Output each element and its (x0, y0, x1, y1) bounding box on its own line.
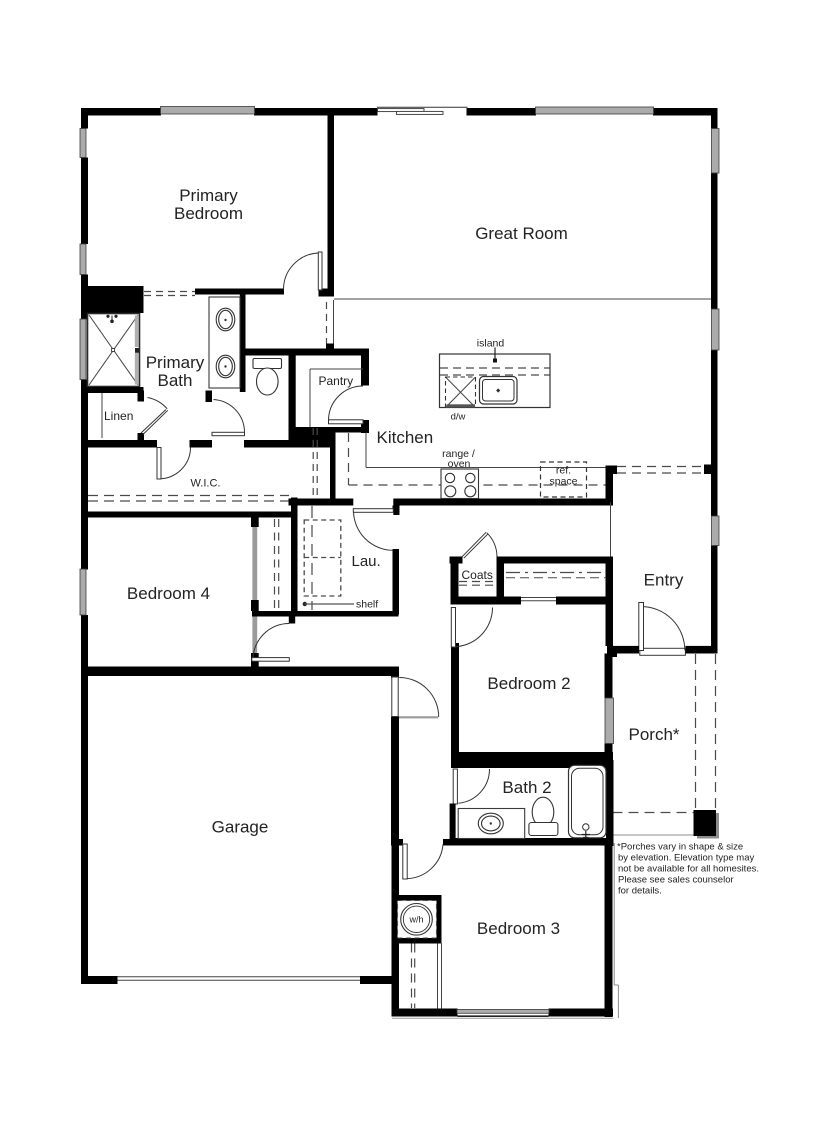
svg-text:Coats: Coats (462, 568, 493, 582)
svg-text:*Porches vary in shape & size: *Porches vary in shape & size (617, 842, 743, 853)
svg-text:Primary: Primary (179, 186, 238, 205)
svg-text:oven: oven (448, 458, 471, 470)
svg-text:Garage: Garage (212, 818, 269, 837)
svg-text:Linen: Linen (104, 409, 133, 423)
svg-text:for details.: for details. (618, 886, 662, 897)
svg-text:space: space (549, 476, 577, 488)
svg-text:Please see sales counselor: Please see sales counselor (618, 875, 734, 886)
svg-text:island: island (477, 338, 505, 350)
svg-text:Bedroom 2: Bedroom 2 (487, 674, 570, 693)
svg-text:Bedroom 3: Bedroom 3 (477, 919, 560, 938)
svg-text:w/h: w/h (408, 915, 423, 925)
svg-text:not be available for all homes: not be available for all homesites. (618, 864, 759, 875)
svg-text:by elevation. Elevation type m: by elevation. Elevation type may (618, 853, 754, 864)
svg-text:Primary: Primary (146, 353, 205, 372)
svg-text:Bath: Bath (158, 371, 193, 390)
svg-text:Bedroom 4: Bedroom 4 (127, 584, 210, 603)
svg-text:shelf: shelf (356, 599, 378, 611)
svg-text:Bath 2: Bath 2 (502, 778, 551, 797)
svg-text:d/w: d/w (451, 412, 466, 423)
svg-text:Great Room: Great Room (475, 224, 568, 243)
svg-text:Entry: Entry (644, 571, 684, 590)
svg-text:Bedroom: Bedroom (174, 204, 243, 223)
svg-text:Kitchen: Kitchen (377, 428, 434, 447)
svg-text:Pantry: Pantry (319, 374, 354, 388)
svg-text:Lau.: Lau. (352, 553, 381, 570)
svg-text:W.I.C.: W.I.C. (191, 478, 221, 490)
svg-text:Porch*: Porch* (628, 725, 679, 744)
